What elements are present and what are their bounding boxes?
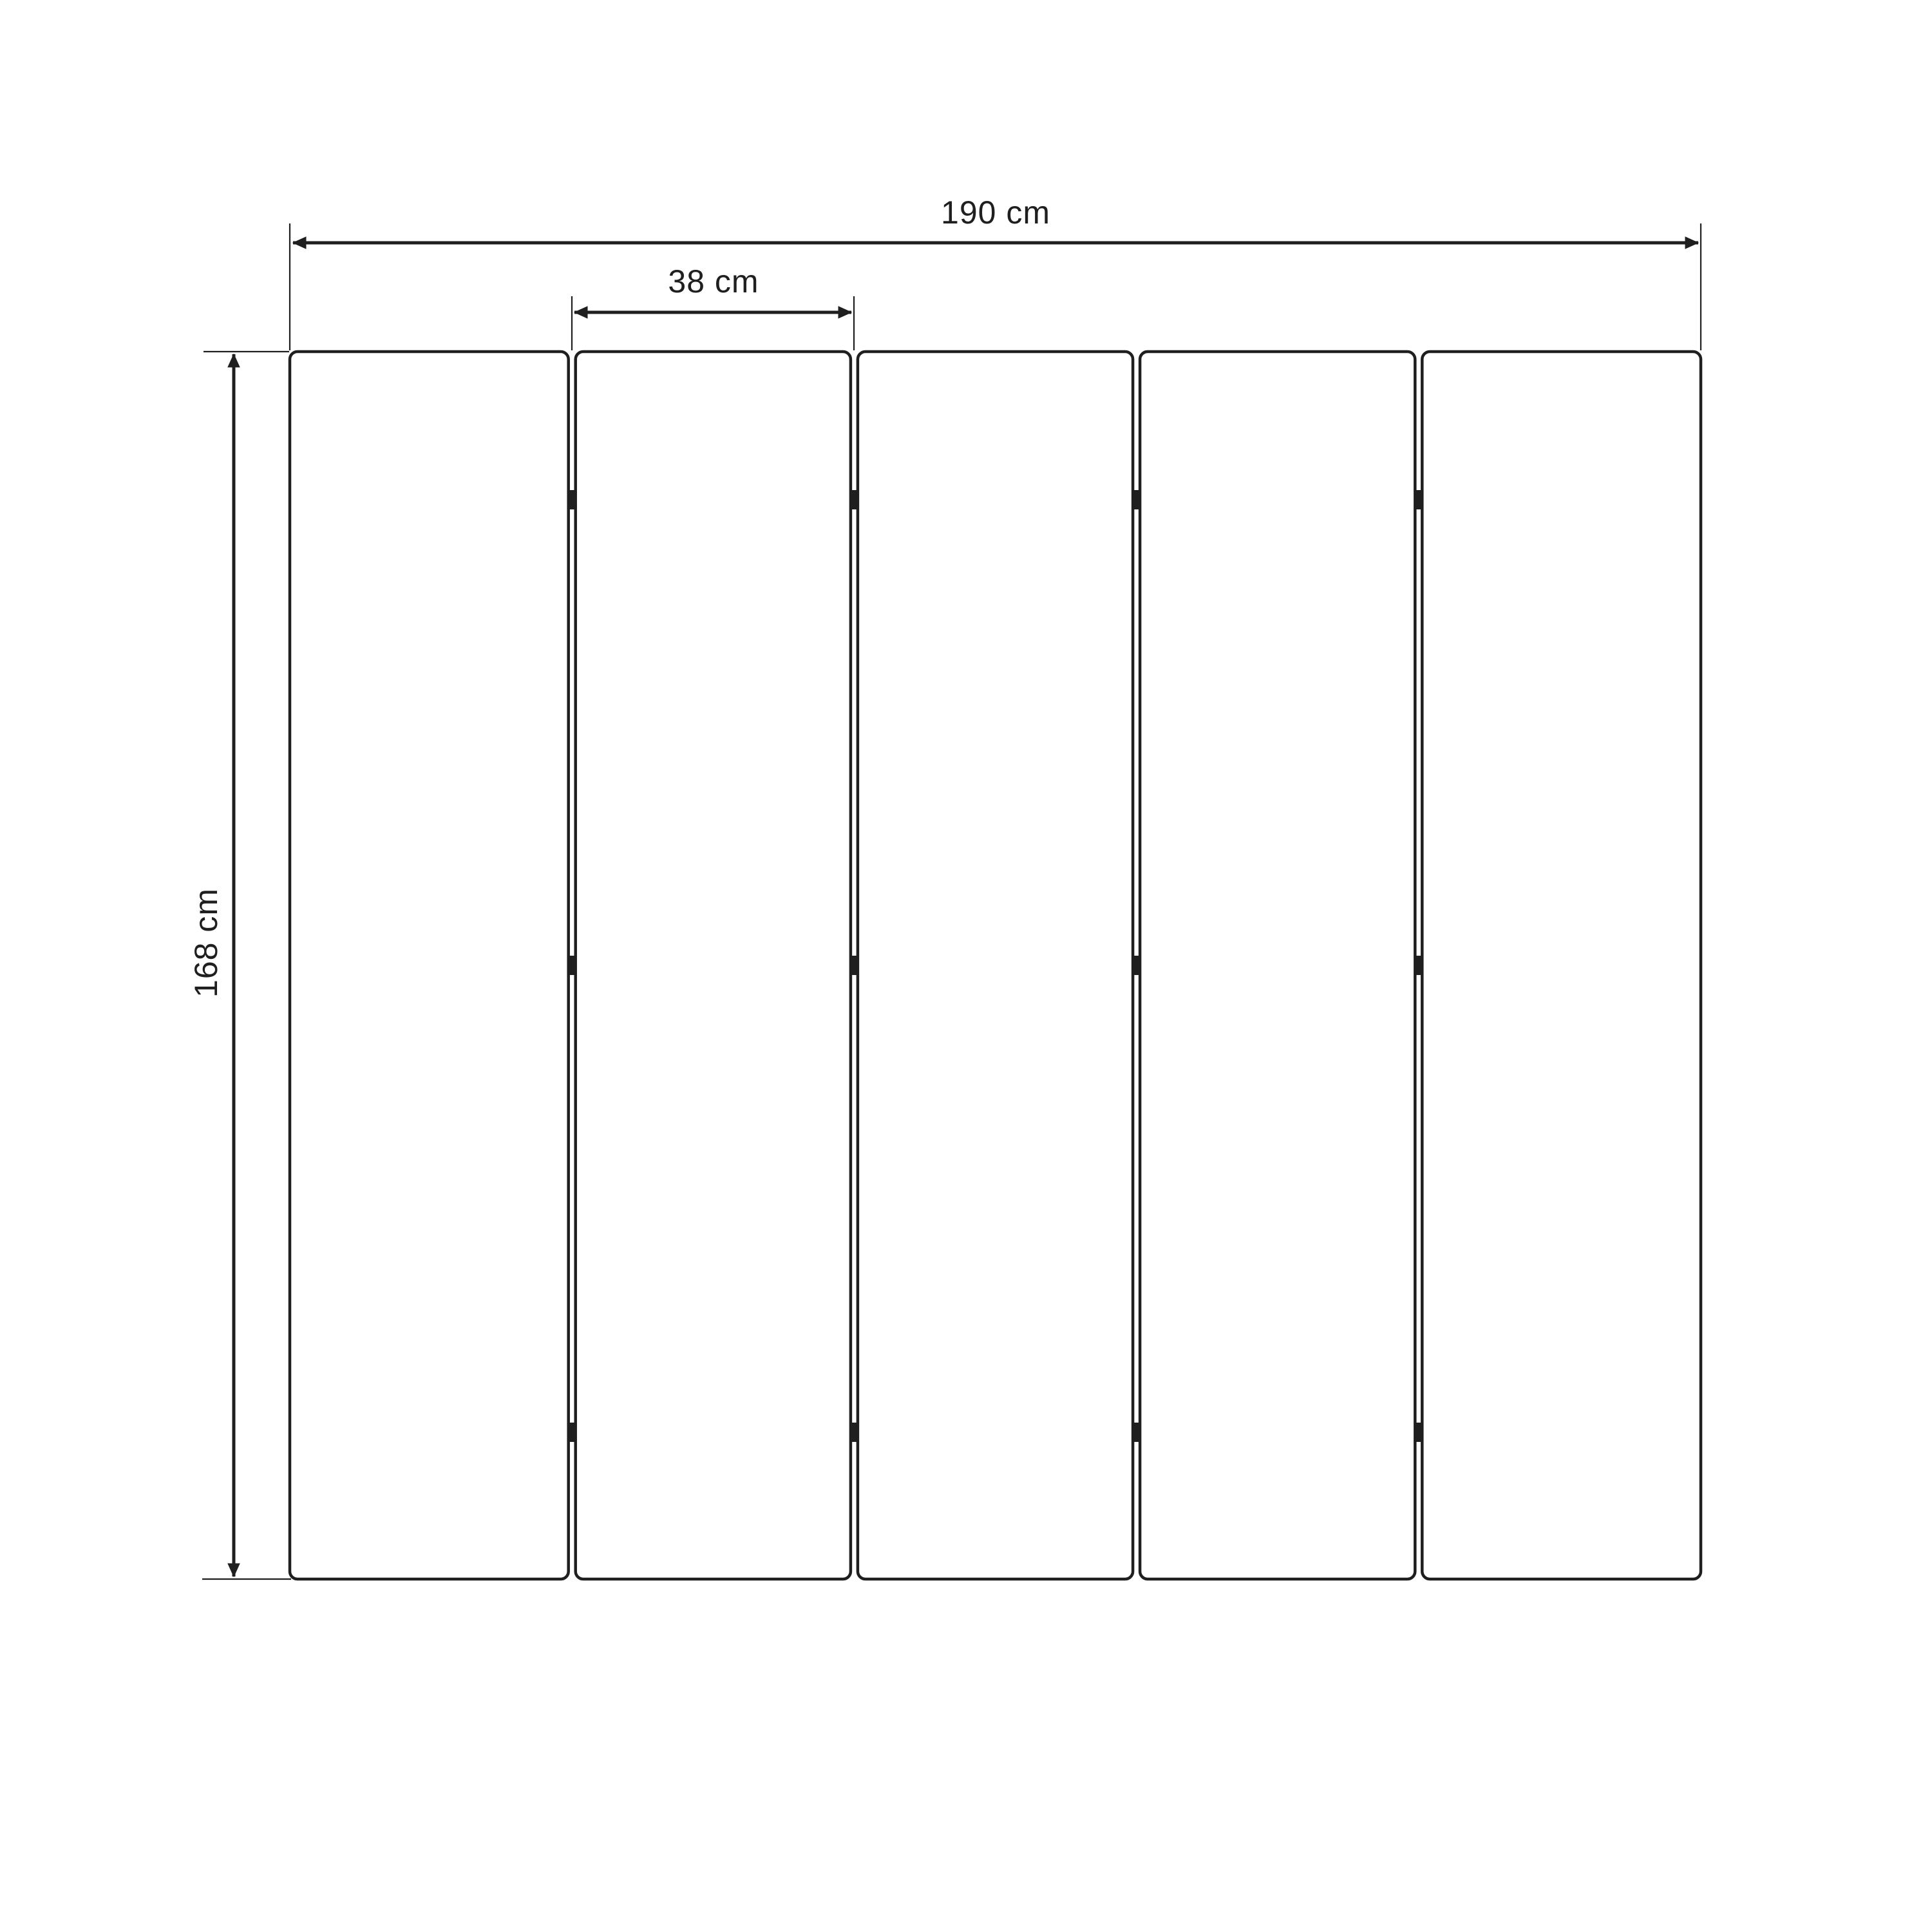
hinge — [1132, 1423, 1141, 1442]
hinge — [1414, 490, 1423, 509]
hinge — [850, 490, 858, 509]
height-label: 168 cm — [187, 846, 225, 1039]
hinge — [568, 490, 576, 509]
screen-panel — [1422, 352, 1701, 1579]
hinge — [568, 956, 576, 975]
screen-panel — [858, 352, 1133, 1579]
hinge — [1132, 956, 1141, 975]
screen-panel — [576, 352, 851, 1579]
dimension-diagram: 190 cm 38 cm 168 cm — [0, 0, 1932, 1932]
panel-width-label: 38 cm — [617, 262, 810, 301]
hinge — [850, 1423, 858, 1442]
screen-panel — [1140, 352, 1415, 1579]
hinge — [568, 1423, 576, 1442]
hinge — [850, 956, 858, 975]
total-width-label: 190 cm — [899, 193, 1092, 232]
screen-panels-group — [290, 352, 1701, 1579]
screen-panel — [290, 352, 569, 1579]
diagram-linework — [0, 0, 1932, 1932]
hinge — [1414, 956, 1423, 975]
hinge — [1414, 1423, 1423, 1442]
hinge — [1132, 490, 1141, 509]
